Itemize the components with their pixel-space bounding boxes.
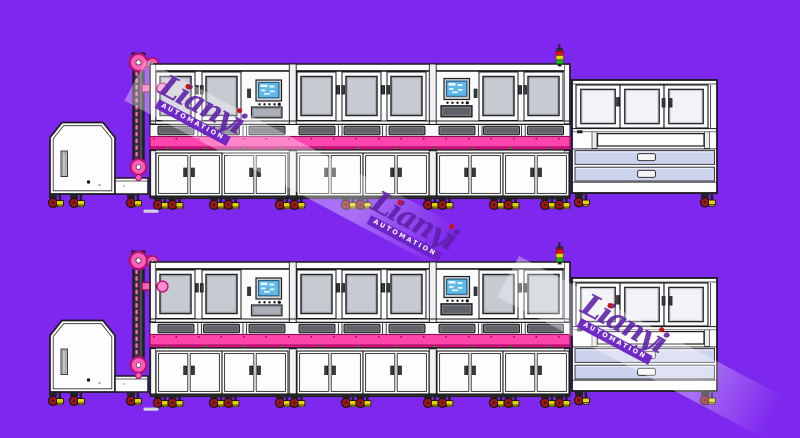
cabinet xyxy=(437,153,503,196)
vent xyxy=(299,324,335,333)
vent-row xyxy=(150,323,570,335)
station-window xyxy=(576,85,620,128)
cabinet xyxy=(297,153,363,196)
cabinet xyxy=(222,351,288,394)
window xyxy=(387,72,426,121)
window xyxy=(297,270,336,319)
end-station xyxy=(572,278,717,391)
vent-row xyxy=(150,125,570,137)
hopper-feeder xyxy=(50,123,115,195)
caster xyxy=(574,392,589,405)
station-window xyxy=(620,283,664,326)
hmi-panel xyxy=(252,80,283,118)
window xyxy=(342,270,381,319)
cabinet xyxy=(222,153,288,196)
hmi-panel xyxy=(441,277,472,315)
window xyxy=(342,72,381,121)
window xyxy=(479,270,518,319)
window xyxy=(297,72,336,121)
vent xyxy=(344,324,380,333)
drawer-handle xyxy=(638,352,656,359)
feeder-slot-window xyxy=(61,151,68,177)
vent xyxy=(484,324,520,333)
process-module-2 xyxy=(297,72,426,121)
outfeed-pedestal xyxy=(115,376,148,392)
cabinet xyxy=(503,153,569,196)
cabinet xyxy=(297,351,363,394)
rail-slot xyxy=(598,134,705,146)
hmi-panel xyxy=(441,79,472,117)
cabinet xyxy=(363,351,429,394)
cabinet xyxy=(503,351,569,394)
vent xyxy=(249,324,285,333)
conveyor-band xyxy=(150,137,570,151)
process-module-3 xyxy=(441,72,563,121)
cabinet xyxy=(156,153,222,196)
vent xyxy=(158,126,194,135)
caster xyxy=(69,392,84,405)
lower-cabinets xyxy=(150,150,570,199)
vent xyxy=(439,126,475,135)
drawer-handle xyxy=(638,154,656,161)
drawer-handle xyxy=(638,368,656,375)
window xyxy=(479,72,518,121)
process-module-3 xyxy=(441,270,563,319)
window xyxy=(156,270,195,319)
drawer-handle xyxy=(638,170,656,177)
hmi-panel xyxy=(252,278,283,316)
machine-drawing xyxy=(0,198,800,420)
caster xyxy=(48,392,63,405)
vent xyxy=(249,126,285,135)
window xyxy=(524,270,563,319)
station-window xyxy=(576,283,620,326)
process-module-2 xyxy=(297,270,426,319)
vent xyxy=(299,126,335,135)
vent xyxy=(389,324,425,333)
window xyxy=(202,270,241,319)
rail-slot xyxy=(598,332,705,344)
machine-drawing xyxy=(0,0,800,222)
lift-port xyxy=(157,281,168,292)
stack-light-icon xyxy=(556,44,563,66)
lower-cabinets xyxy=(150,348,570,397)
station-window xyxy=(620,85,664,128)
vent xyxy=(528,126,564,135)
cad-canvas: Lianyi AUTOMATION Lianyi AUTOMATION Lian… xyxy=(0,0,800,438)
production-line-bottom xyxy=(0,198,800,420)
caster xyxy=(126,392,141,405)
window xyxy=(524,72,563,121)
vent xyxy=(204,324,240,333)
vent xyxy=(389,126,425,135)
vent xyxy=(344,126,380,135)
vent xyxy=(158,324,194,333)
outfeed-pedestal xyxy=(115,178,148,194)
dimension-mark xyxy=(144,408,159,411)
hopper-feeder xyxy=(50,321,115,393)
feeder-slot-window xyxy=(61,349,68,375)
cabinet xyxy=(156,351,222,394)
window xyxy=(156,72,195,121)
cabinet xyxy=(437,351,503,394)
window xyxy=(387,270,426,319)
caster xyxy=(700,392,715,405)
window xyxy=(202,72,241,121)
conveyor-band xyxy=(150,335,570,349)
process-line xyxy=(150,242,570,397)
stack-light-icon xyxy=(556,242,563,264)
production-line-top xyxy=(0,0,800,222)
end-station xyxy=(572,80,717,193)
process-line xyxy=(150,44,570,199)
vent xyxy=(484,126,520,135)
cabinet xyxy=(363,153,429,196)
vent xyxy=(204,126,240,135)
lift-port xyxy=(157,83,168,94)
vent xyxy=(439,324,475,333)
vent xyxy=(528,324,564,333)
